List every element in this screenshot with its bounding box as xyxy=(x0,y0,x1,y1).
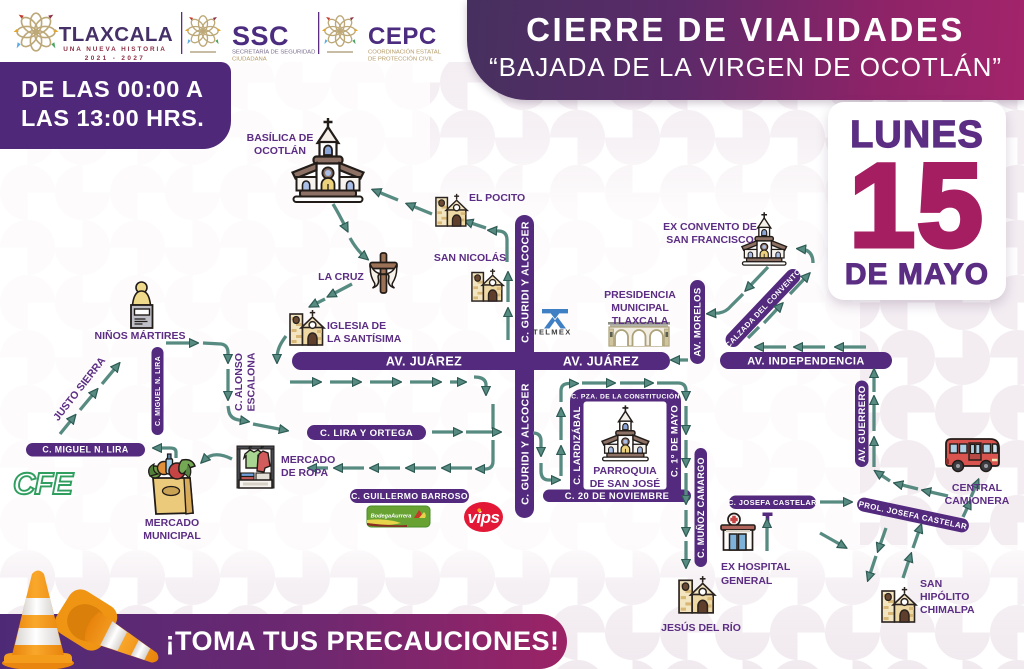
svg-text:JESÚS DEL RÍO: JESÚS DEL RÍO xyxy=(661,621,741,634)
svg-text:GENERAL: GENERAL xyxy=(721,575,773,587)
svg-text:vips: vips xyxy=(467,508,499,527)
svg-text:LA SANTÍSIMA: LA SANTÍSIMA xyxy=(327,332,402,345)
svg-text:C. MUÑOZ CAMARGO: C. MUÑOZ CAMARGO xyxy=(696,457,706,558)
svg-text:DE ROPA: DE ROPA xyxy=(281,467,328,479)
svg-text:PRESIDENCIA: PRESIDENCIA xyxy=(604,289,676,301)
svg-text:C. MIGUEL N. LIRA: C. MIGUEL N. LIRA xyxy=(155,356,162,426)
svg-text:CHIMALPA: CHIMALPA xyxy=(920,604,975,616)
svg-text:AV. GUERRERO: AV. GUERRERO xyxy=(857,386,868,463)
svg-text:CFE: CFE xyxy=(13,466,74,501)
svg-text:ESCALONA: ESCALONA xyxy=(246,352,258,411)
svg-text:MUNICIPAL: MUNICIPAL xyxy=(611,302,669,314)
svg-text:BodegaAurrera: BodegaAurrera xyxy=(371,514,412,520)
svg-text:JUSTO SIERRA: JUSTO SIERRA xyxy=(51,355,108,424)
svg-text:TLAXCALA: TLAXCALA xyxy=(612,315,669,327)
svg-text:NIÑOS MÁRTIRES: NIÑOS MÁRTIRES xyxy=(94,329,185,342)
svg-text:SAN FRANCISCO: SAN FRANCISCO xyxy=(666,234,754,246)
svg-text:TELMEX: TELMEX xyxy=(533,328,572,337)
svg-text:C. GURIDI Y ALCOCER: C. GURIDI Y ALCOCER xyxy=(520,383,532,505)
svg-text:CENTRAL: CENTRAL xyxy=(952,482,1003,494)
svg-text:C. PZA. DE LA CONSTITUCIÓN: C. PZA. DE LA CONSTITUCIÓN xyxy=(571,391,680,400)
svg-text:EX CONVENTO DE: EX CONVENTO DE xyxy=(663,221,757,233)
svg-text:AV. JUÁREZ: AV. JUÁREZ xyxy=(386,354,462,369)
svg-text:C. GURIDI Y ALCOCER: C. GURIDI Y ALCOCER xyxy=(520,221,532,343)
svg-text:HIPÓLITO: HIPÓLITO xyxy=(920,590,969,603)
svg-text:AV. MORELOS: AV. MORELOS xyxy=(693,287,704,356)
svg-text:DE SAN JOSÉ: DE SAN JOSÉ xyxy=(590,477,661,490)
svg-text:EX HOSPITAL: EX HOSPITAL xyxy=(721,561,791,573)
svg-text:C. LIRA Y ORTEGA: C. LIRA Y ORTEGA xyxy=(320,428,413,439)
svg-text:AV. JUÁREZ: AV. JUÁREZ xyxy=(563,354,639,369)
svg-text:CAMIONERA: CAMIONERA xyxy=(945,495,1010,507)
svg-text:C. MIGUEL N. LIRA: C. MIGUEL N. LIRA xyxy=(42,445,129,455)
svg-text:EL POCITO: EL POCITO xyxy=(469,192,525,204)
svg-text:C. LARDIZÁBAL: C. LARDIZÁBAL xyxy=(572,406,583,485)
svg-text:SAN NICOLÁS: SAN NICOLÁS xyxy=(434,251,506,264)
svg-text:C. 20 DE NOVIEMBRE: C. 20 DE NOVIEMBRE xyxy=(565,490,670,501)
svg-text:C. ALONSO: C. ALONSO xyxy=(233,353,245,411)
svg-text:MERCADO: MERCADO xyxy=(145,517,199,529)
svg-text:IGLESIA DE: IGLESIA DE xyxy=(327,320,386,332)
svg-text:C. 1º DE MAYO: C. 1º DE MAYO xyxy=(670,405,681,477)
svg-text:LA CRUZ: LA CRUZ xyxy=(318,271,364,283)
svg-text:SAN: SAN xyxy=(920,578,942,590)
svg-text:BASÍLICA DE: BASÍLICA DE xyxy=(247,131,314,144)
svg-text:MERCADO: MERCADO xyxy=(281,454,335,466)
svg-text:AV. INDEPENDENCIA: AV. INDEPENDENCIA xyxy=(747,355,864,367)
svg-text:CALZADA DEL CONVENTO: CALZADA DEL CONVENTO xyxy=(724,267,803,350)
svg-text:C. JOSEFA CASTELAR: C. JOSEFA CASTELAR xyxy=(728,498,817,507)
svg-text:OCOTLÁN: OCOTLÁN xyxy=(254,144,306,157)
svg-text:PARROQUIA: PARROQUIA xyxy=(593,465,657,477)
svg-text:C. GUILLERMO BARROSO: C. GUILLERMO BARROSO xyxy=(351,491,468,501)
svg-text:MUNICIPAL: MUNICIPAL xyxy=(143,530,201,542)
